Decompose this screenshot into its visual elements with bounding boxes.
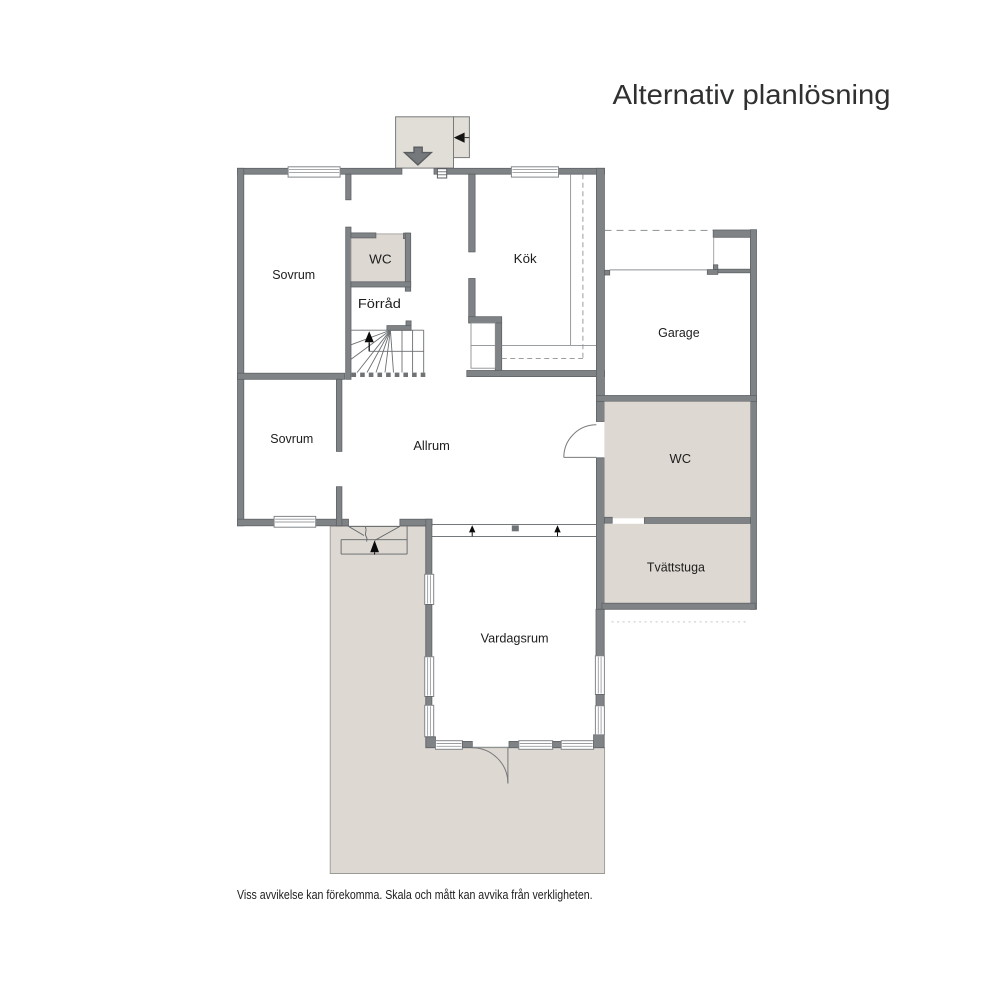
svg-text:Garage: Garage <box>658 325 700 340</box>
svg-text:Förråd: Förråd <box>358 296 401 311</box>
svg-text:Allrum: Allrum <box>413 438 450 453</box>
svg-text:Kök: Kök <box>514 251 538 266</box>
svg-text:Alternativ planlösning: Alternativ planlösning <box>613 79 891 110</box>
svg-text:WC: WC <box>369 252 392 267</box>
svg-text:Vardagsrum: Vardagsrum <box>481 631 549 646</box>
svg-text:Sovrum: Sovrum <box>272 267 315 282</box>
svg-text:WC: WC <box>670 451 692 466</box>
svg-text:Viss avvikelse kan förekomma.: Viss avvikelse kan förekomma. Skala och … <box>237 887 593 902</box>
svg-text:Tvättstuga: Tvättstuga <box>647 560 706 575</box>
svg-text:Sovrum: Sovrum <box>270 431 313 446</box>
